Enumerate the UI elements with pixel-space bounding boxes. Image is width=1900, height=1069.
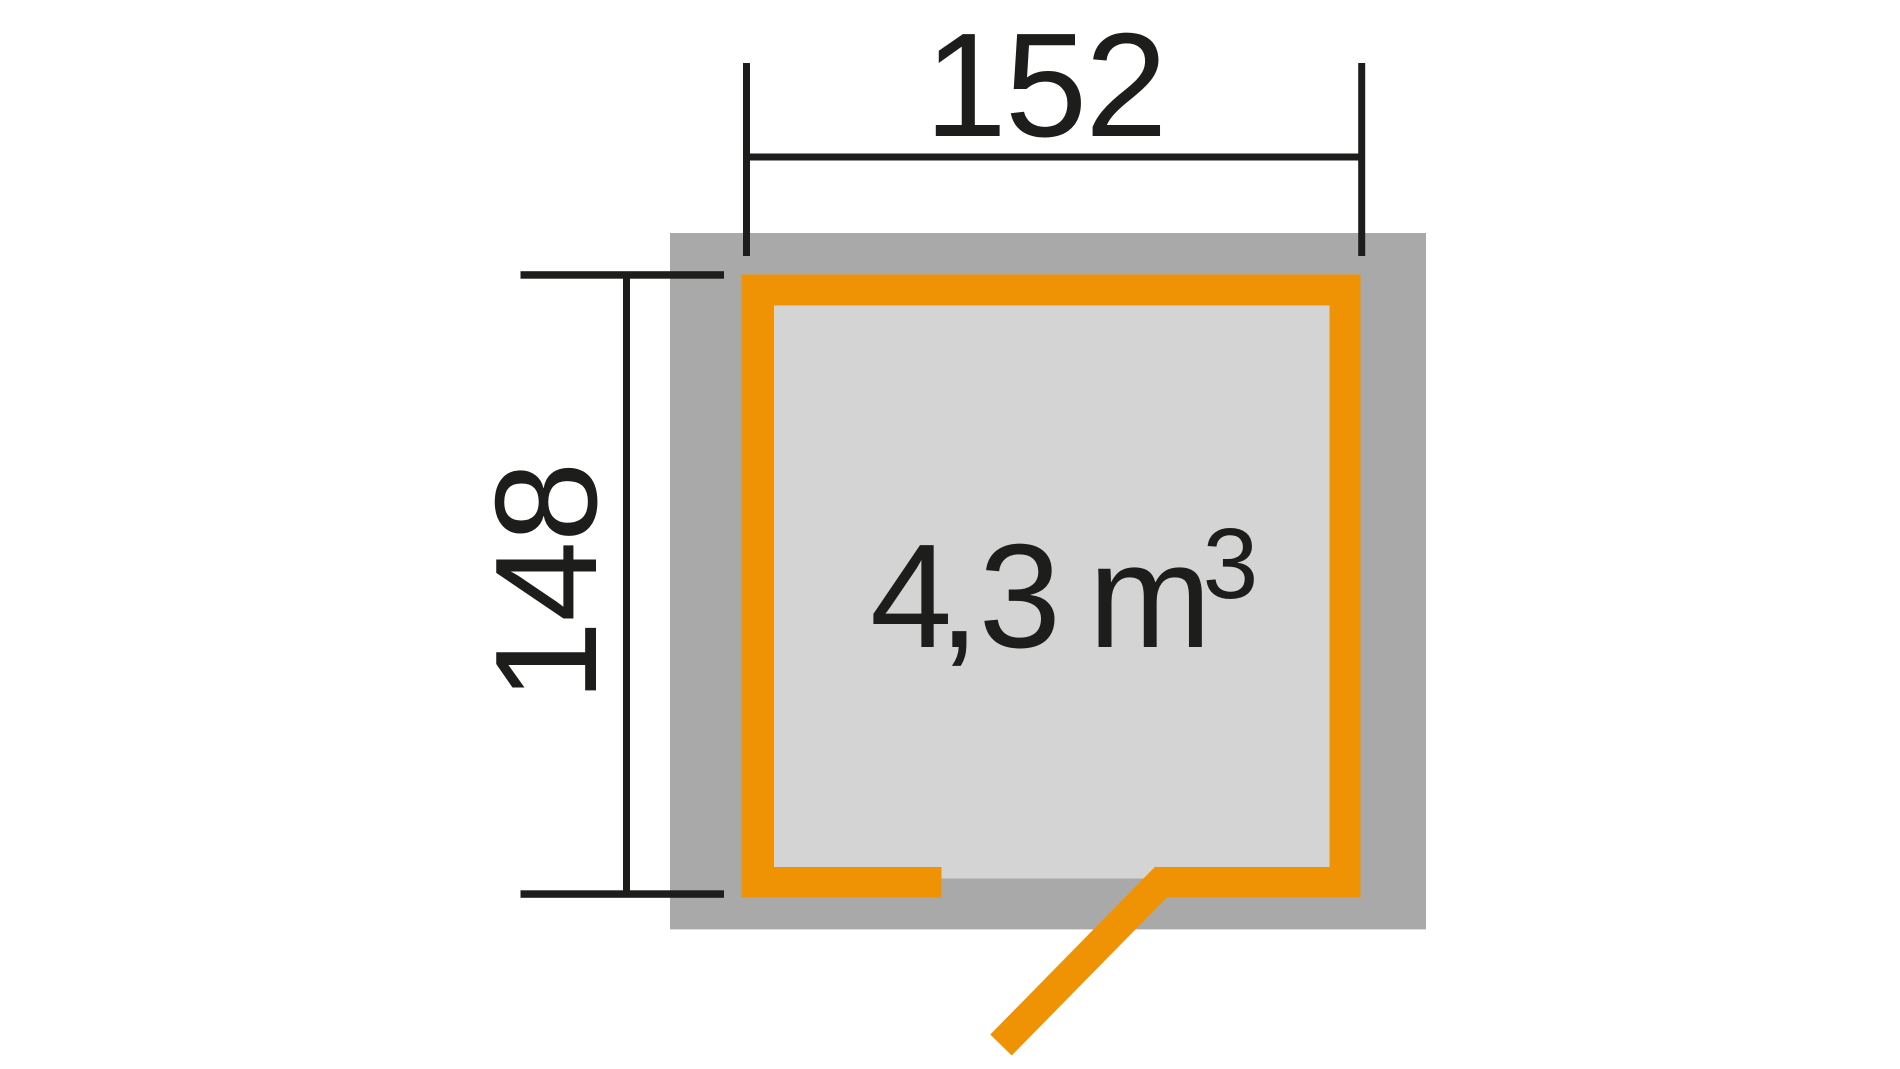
svg-text:152: 152 (925, 3, 1166, 168)
svg-text:148: 148 (465, 463, 627, 702)
